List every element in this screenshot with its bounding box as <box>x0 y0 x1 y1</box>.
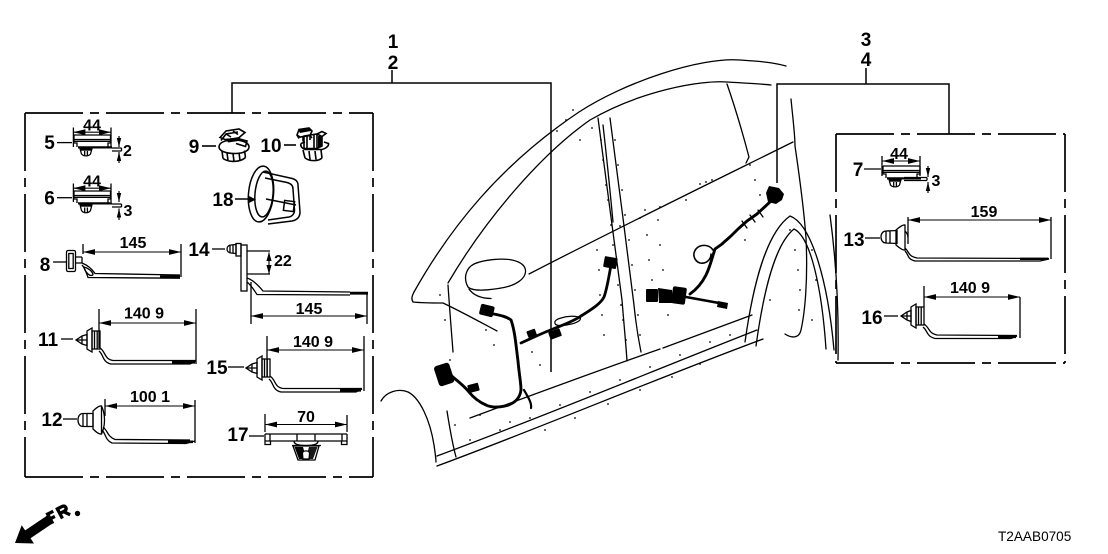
svg-text:4: 4 <box>861 50 872 71</box>
svg-text:44: 44 <box>83 118 101 135</box>
svg-text:140 9: 140 9 <box>124 306 164 323</box>
svg-text:44: 44 <box>890 146 908 163</box>
svg-text:14: 14 <box>188 240 210 261</box>
svg-text:17: 17 <box>227 425 248 446</box>
svg-text:1: 1 <box>388 32 399 53</box>
svg-text:16: 16 <box>861 308 882 329</box>
svg-text:145: 145 <box>296 301 323 318</box>
svg-text:8: 8 <box>40 255 51 276</box>
svg-text:2: 2 <box>388 53 399 74</box>
svg-text:T2AAB0705: T2AAB0705 <box>998 529 1071 544</box>
svg-text:140 9: 140 9 <box>950 280 990 297</box>
svg-text:140 9: 140 9 <box>293 334 333 351</box>
svg-text:159: 159 <box>971 204 998 221</box>
svg-text:12: 12 <box>41 410 62 431</box>
svg-text:100 1: 100 1 <box>130 389 170 406</box>
svg-text:13: 13 <box>843 230 864 251</box>
svg-text:11: 11 <box>38 330 59 351</box>
svg-text:70: 70 <box>297 409 315 426</box>
svg-text:22: 22 <box>274 253 292 270</box>
svg-text:3: 3 <box>932 173 941 190</box>
svg-text:10: 10 <box>260 136 281 157</box>
svg-text:15: 15 <box>206 358 228 379</box>
svg-text:3: 3 <box>124 203 133 220</box>
svg-text:6: 6 <box>44 189 55 210</box>
svg-text:44: 44 <box>83 174 101 191</box>
svg-text:18: 18 <box>212 190 233 211</box>
svg-text:7: 7 <box>853 160 864 181</box>
svg-text:9: 9 <box>189 137 200 158</box>
svg-text:5: 5 <box>44 133 55 154</box>
svg-text:145: 145 <box>120 235 147 252</box>
svg-text:2: 2 <box>123 143 132 160</box>
svg-text:3: 3 <box>861 30 872 51</box>
